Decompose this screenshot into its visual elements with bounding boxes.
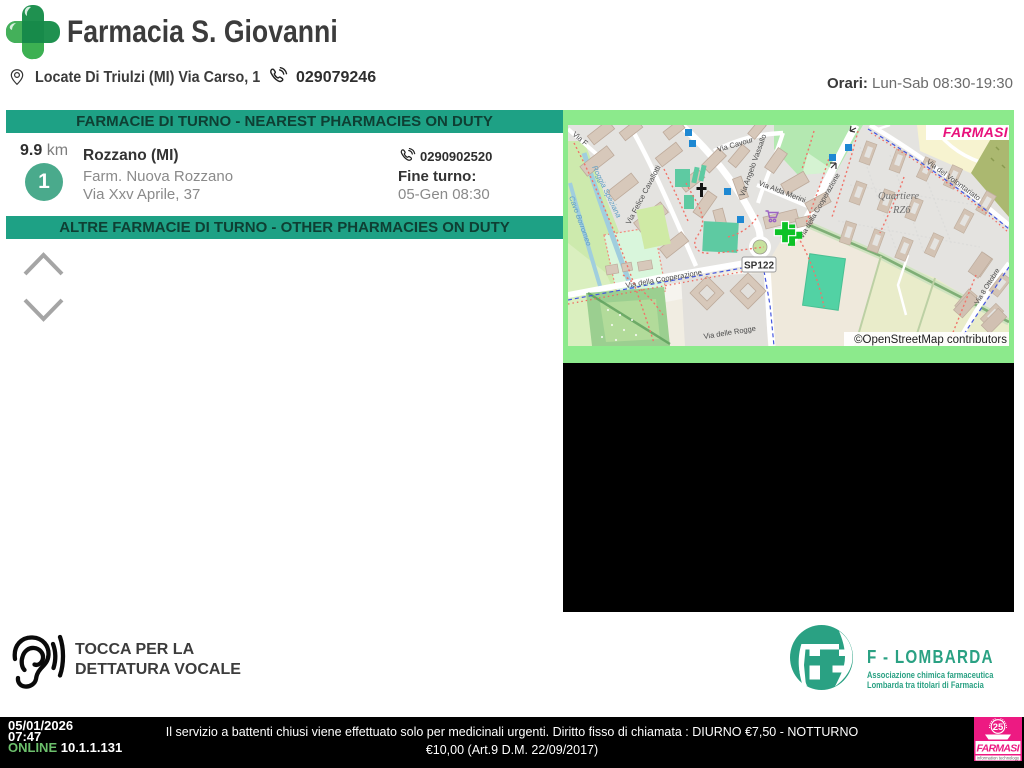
svg-text:information technology: information technology <box>977 756 1020 761</box>
svg-text:RZ6: RZ6 <box>892 205 911 216</box>
svg-text:25: 25 <box>993 722 1004 733</box>
svg-text:Quartiere: Quartiere <box>878 191 919 202</box>
svg-text:SP122: SP122 <box>744 261 774 272</box>
svg-text:FARMASI: FARMASI <box>977 743 1021 755</box>
svg-text:©OpenStreetMap contributors: ©OpenStreetMap contributors <box>854 334 1007 346</box>
svg-text:FARMASI: FARMASI <box>943 125 1009 140</box>
